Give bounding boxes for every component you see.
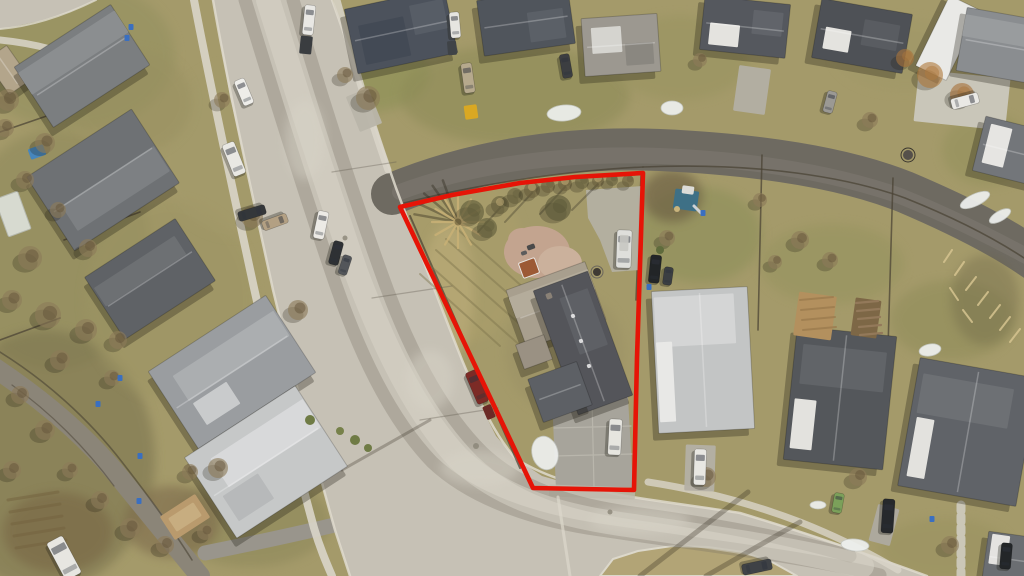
shrub-green <box>656 246 664 254</box>
rv-roof-stripe <box>619 235 629 251</box>
neighbor-house-roof <box>891 357 1024 514</box>
neighbor-house-roof <box>645 287 755 441</box>
blue-bin <box>96 401 101 407</box>
snow-patch <box>810 501 826 509</box>
pavement-blotch <box>590 506 690 534</box>
shrub-green <box>364 444 372 452</box>
playground-sand <box>674 206 680 212</box>
pavement-blotch <box>406 350 454 410</box>
yellow-bin <box>464 104 479 120</box>
fire-pit <box>593 268 601 276</box>
manhole <box>473 443 479 449</box>
shrub-green <box>336 427 344 435</box>
house-roof <box>693 0 791 65</box>
blue-bin <box>137 498 142 504</box>
blue-bin <box>701 210 706 216</box>
shrub-green <box>305 415 315 425</box>
pavement-blotch <box>440 450 520 486</box>
aerial-neighborhood-photo <box>0 0 1024 576</box>
blue-bin <box>129 24 134 30</box>
snow-patch <box>661 101 683 115</box>
neighbor-house-roof <box>777 326 897 477</box>
subject-white-suv <box>604 419 622 458</box>
shrub-green <box>350 435 360 445</box>
manhole <box>343 236 348 241</box>
fire-ring <box>903 150 913 160</box>
house-roof <box>575 13 661 84</box>
playground-roof <box>682 185 695 195</box>
dark-suv-corner <box>996 542 1012 571</box>
driveway-apron <box>733 65 771 115</box>
utility-trailer <box>299 35 313 54</box>
blue-bin <box>647 284 652 290</box>
blue-bin <box>138 453 143 459</box>
pavement-blotch <box>285 100 325 180</box>
blue-bin <box>125 35 130 41</box>
pampas-base <box>951 255 1019 345</box>
dark-suv <box>878 498 895 535</box>
dark-equipment <box>447 41 457 56</box>
blue-bin <box>930 516 935 522</box>
grass-tuft <box>496 198 504 206</box>
blue-bin <box>118 375 123 381</box>
aerial-photo-canvas <box>0 0 1024 576</box>
white-car <box>690 449 706 488</box>
white-trailer <box>446 12 461 41</box>
manhole <box>608 510 613 515</box>
